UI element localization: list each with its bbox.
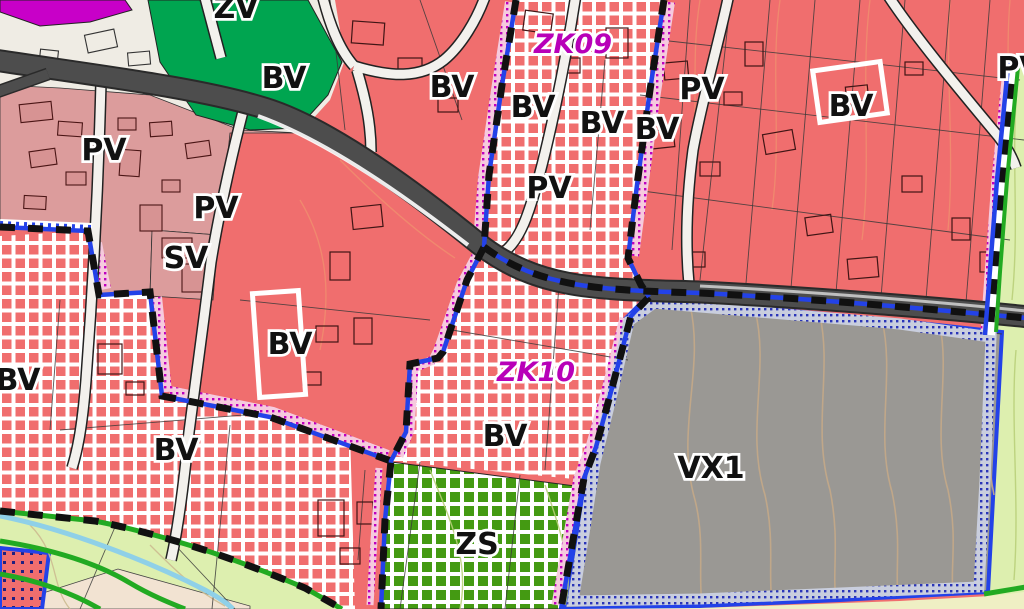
label-bv-10: BV xyxy=(511,90,557,125)
label-bv-18: BV xyxy=(483,419,529,454)
label-zv-0: ZV xyxy=(214,0,260,26)
label-bv-6: BV xyxy=(268,327,314,362)
zoning-map: ZVBVBVPVPVSVBVBVBVZK09BVBVPVPVBVBVPVZK10… xyxy=(0,0,1024,609)
label-pv-13: PV xyxy=(679,72,725,107)
label-bv-15: BV xyxy=(829,89,875,124)
label-zs-20: ZS xyxy=(455,527,498,562)
label-vx1-19: VX1 xyxy=(677,451,744,486)
label-bv-7: BV xyxy=(0,363,41,398)
label-bv-1: BV xyxy=(262,61,308,96)
label-pv-4: PV xyxy=(193,191,239,226)
label-pv-16: PV xyxy=(997,51,1024,86)
label-pv-3: PV xyxy=(81,133,127,168)
label-pv-12: PV xyxy=(526,171,572,206)
label-bv-14: BV xyxy=(635,112,681,147)
label-zk10-17: ZK10 xyxy=(496,357,575,388)
zone-vx1-area xyxy=(564,296,1002,609)
zoning-map-canvas[interactable]: ZVBVBVPVPVSVBVBVBVZK09BVBVPVPVBVBVPVZK10… xyxy=(0,0,1024,609)
label-zk09-9: ZK09 xyxy=(533,29,612,60)
label-bv-2: BV xyxy=(430,70,476,105)
label-sv-5: SV xyxy=(164,241,210,276)
label-bv-8: BV xyxy=(154,433,200,468)
label-bv-11: BV xyxy=(580,106,626,141)
